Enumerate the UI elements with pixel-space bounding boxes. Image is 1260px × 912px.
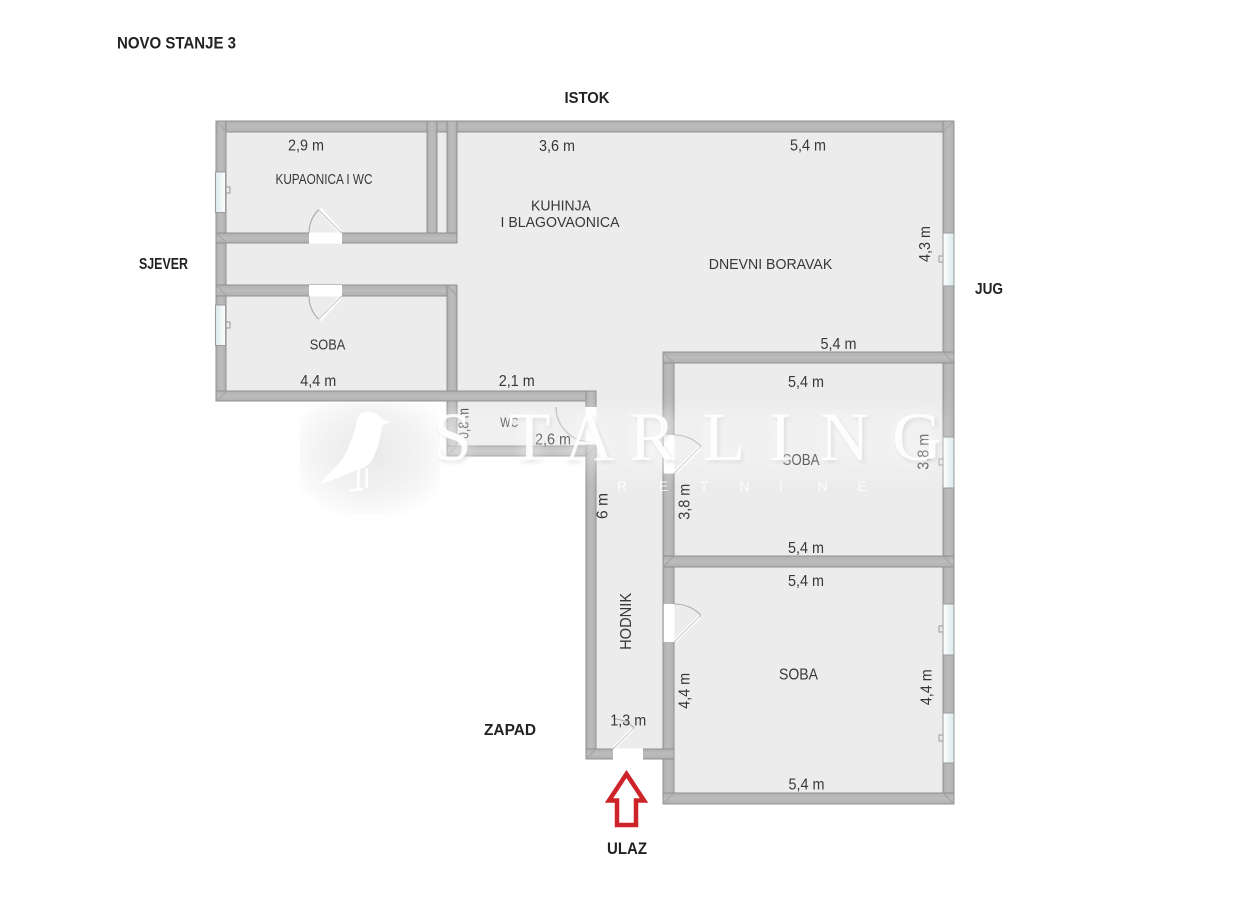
svg-text:E: E (857, 478, 866, 494)
svg-text:E: E (659, 478, 668, 494)
svg-text:S: S (433, 399, 471, 475)
svg-text:4,4 m: 4,4 m (919, 669, 936, 705)
svg-text:E: E (536, 478, 545, 494)
svg-text:G: G (892, 399, 942, 475)
svg-text:I BLAGOVAONICA: I BLAGOVAONICA (501, 214, 620, 231)
svg-text:DNEVNI BORAVAK: DNEVNI BORAVAK (709, 256, 833, 273)
svg-text:5,4 m: 5,4 m (788, 573, 824, 590)
svg-text:L: L (703, 399, 745, 475)
svg-text:KUPAONICA I WC: KUPAONICA I WC (276, 172, 373, 188)
svg-text:KUHINJA: KUHINJA (531, 198, 591, 215)
svg-text:2,1 m: 2,1 m (499, 373, 535, 390)
svg-text:4,3 m: 4,3 m (917, 226, 934, 262)
svg-text:K: K (577, 478, 587, 494)
svg-text:ZAPAD: ZAPAD (484, 722, 536, 739)
svg-text:N: N (817, 478, 827, 494)
svg-text:5,4 m: 5,4 m (821, 336, 857, 353)
svg-text:5,4 m: 5,4 m (789, 777, 825, 794)
svg-text:ISTOK: ISTOK (565, 90, 610, 107)
svg-text:6 m: 6 m (595, 493, 612, 519)
svg-text:SOBA: SOBA (310, 337, 346, 354)
svg-text:3,6 m: 3,6 m (539, 138, 575, 155)
svg-text:5,4 m: 5,4 m (788, 540, 824, 557)
svg-text:3,8 m: 3,8 m (677, 484, 694, 520)
svg-text:N: N (820, 399, 870, 475)
svg-text:JUG: JUG (975, 281, 1003, 298)
svg-text:4,4 m: 4,4 m (300, 373, 336, 390)
svg-text:I: I (779, 478, 783, 494)
svg-text:4,4 m: 4,4 m (677, 673, 694, 709)
svg-text:ULAZ: ULAZ (607, 840, 647, 858)
svg-text:N: N (495, 478, 505, 494)
svg-text:I: I (769, 399, 792, 475)
svg-text:SOBA: SOBA (779, 667, 819, 684)
svg-text:5,4 m: 5,4 m (788, 374, 824, 391)
svg-text:T: T (700, 478, 709, 494)
svg-text:R: R (629, 399, 675, 475)
svg-text:R: R (617, 478, 627, 494)
svg-text:SJEVER: SJEVER (139, 256, 188, 273)
svg-text:NOVO STANJE 3: NOVO STANJE 3 (117, 35, 236, 53)
svg-text:N: N (739, 478, 749, 494)
svg-text:2,9 m: 2,9 m (288, 138, 324, 155)
svg-text:5,4 m: 5,4 m (790, 138, 826, 155)
svg-text:T: T (508, 399, 550, 475)
svg-text:HODNIK: HODNIK (618, 593, 635, 650)
svg-text:1,3 m: 1,3 m (610, 712, 646, 729)
svg-text:A: A (564, 399, 614, 475)
